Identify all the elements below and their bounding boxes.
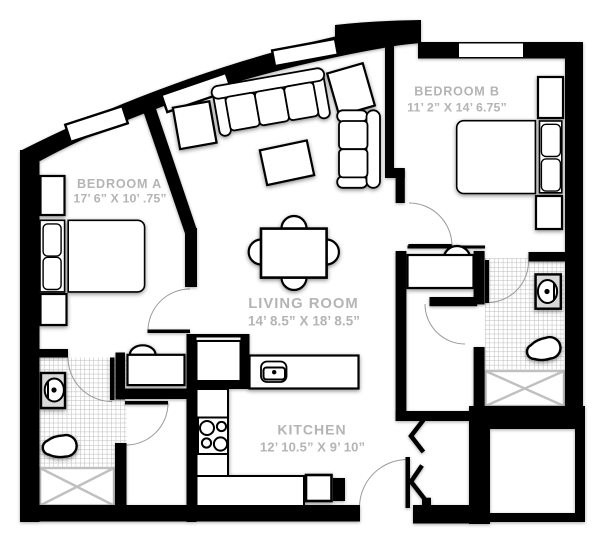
svg-text:12’ 10.5” X 9’ 10”: 12’ 10.5” X 9’ 10” — [260, 440, 365, 455]
svg-text:BEDROOM A: BEDROOM A — [77, 177, 162, 191]
svg-text:17’ 6” X 10’ .75”: 17’ 6” X 10’ .75” — [73, 192, 166, 206]
svg-text:BEDROOM B: BEDROOM B — [414, 85, 500, 99]
svg-text:LIVING ROOM: LIVING ROOM — [248, 296, 358, 312]
svg-text:14’ 8.5” X 18’ 8.5”: 14’ 8.5” X 18’ 8.5” — [248, 314, 360, 329]
svg-text:11’ 2” X 14’ 6.75”: 11’ 2” X 14’ 6.75” — [407, 101, 507, 115]
svg-text:KITCHEN: KITCHEN — [277, 422, 346, 438]
